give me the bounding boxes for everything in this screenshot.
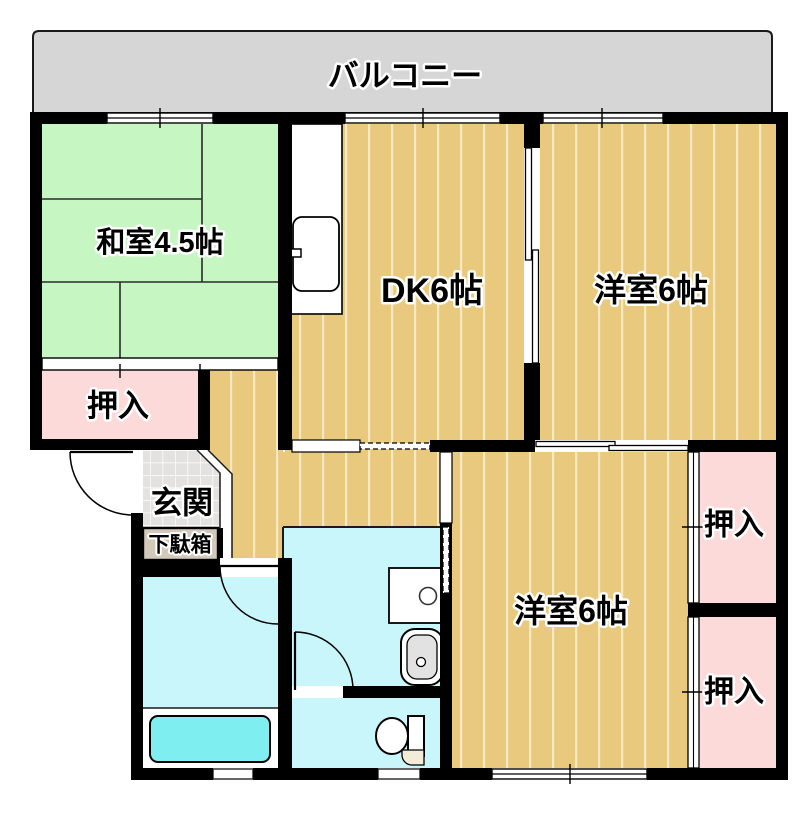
window-bathroom [213, 769, 253, 779]
genkan-label: 玄関 [151, 486, 213, 521]
entrance-door [70, 450, 143, 515]
oshiire-e-upper-label: 押入 [704, 509, 764, 542]
washbasin-icon [401, 629, 443, 685]
toilet-room-floor [283, 698, 452, 768]
yoshitsu-ne-label: 洋室6帖 [594, 272, 708, 308]
washitsu-label: 和室4.5帖 [96, 225, 223, 259]
sliding-door-dk-yoshitsu-ne [524, 148, 540, 363]
washing-machine-icon [389, 568, 441, 623]
window-toilet [378, 769, 420, 779]
yoshitsu-se-label: 洋室6帖 [514, 593, 628, 629]
balcony-label: バルコニー [328, 59, 482, 94]
floorplan-canvas: バルコニー 和室4.5帖 DK6帖 洋室6帖 洋室6帖 押入 押入 押入 玄関 … [0, 0, 812, 819]
oshiire-e-lower-label: 押入 [704, 676, 764, 709]
oshiire-nw-label: 押入 [87, 389, 149, 424]
dk-label: DK6帖 [381, 272, 483, 310]
hallway-floor-lower [278, 452, 440, 527]
kitchen-counter-icon [284, 124, 342, 314]
getabako-label: 下駄箱 [149, 533, 212, 557]
bathtub-icon [143, 708, 278, 768]
sliding-door-yoshitsu-divider [535, 440, 688, 452]
